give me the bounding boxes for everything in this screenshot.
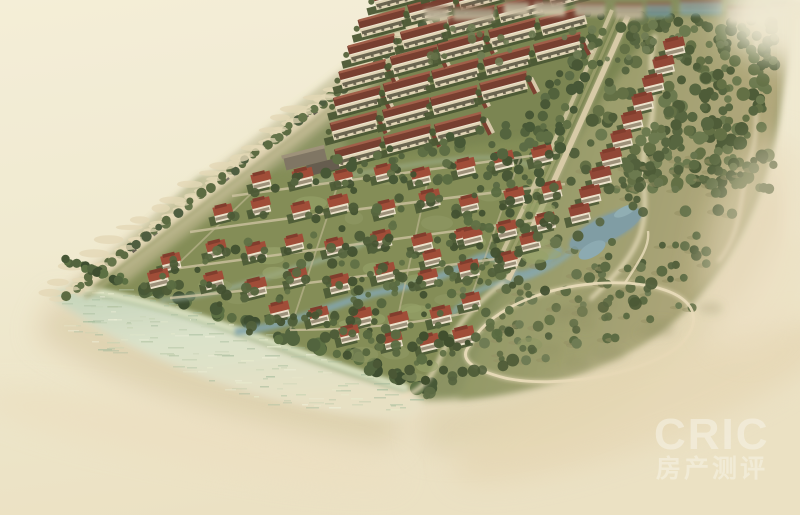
svg-text:CRIC: CRIC — [654, 410, 770, 459]
svg-text:房产测评: 房产测评 — [656, 454, 768, 483]
